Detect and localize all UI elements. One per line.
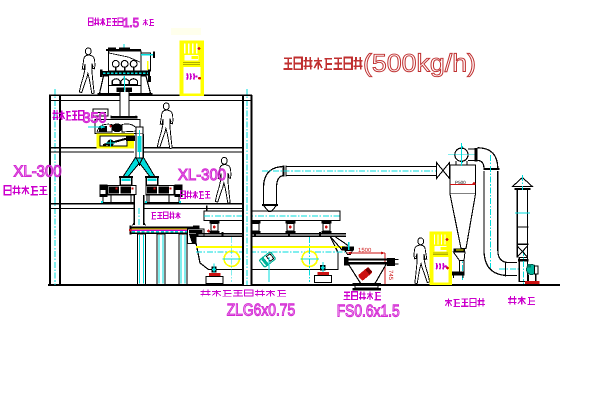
svg-text:XL-300: XL-300 [14,164,62,181]
svg-text:XL-300: XL-300 [178,167,226,184]
svg-text:350: 350 [83,111,107,127]
svg-text:(500kg/h): (500kg/h) [363,50,476,78]
svg-text:1500: 1500 [358,247,372,254]
svg-text:ZLG6x0.75: ZLG6x0.75 [227,301,296,320]
svg-text:P500: P500 [455,180,466,185]
svg-text:FS0.6x1.5: FS0.6x1.5 [337,302,400,321]
svg-text:745: 745 [387,270,394,281]
svg-text:1.5: 1.5 [123,15,139,30]
